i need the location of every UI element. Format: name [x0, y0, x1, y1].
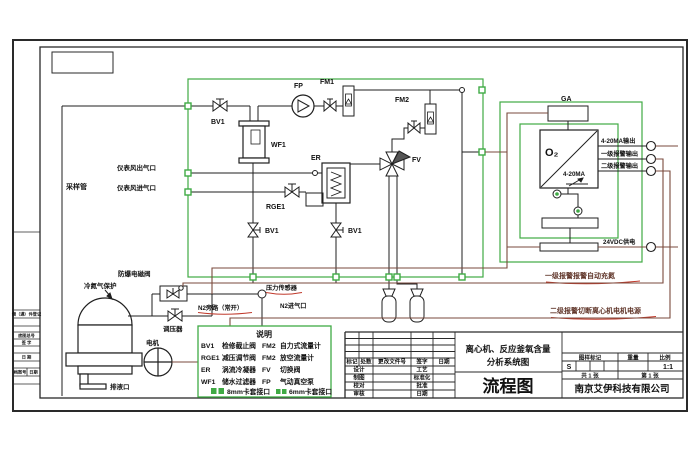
legend-desc-6: 储水过滤器: [221, 377, 256, 386]
row-standard-label: 标准化: [413, 374, 431, 382]
row-check-label: 校对: [353, 382, 365, 390]
rev-count-label: 处数: [359, 358, 372, 366]
regulator-label: 调压器: [163, 324, 183, 333]
solenoid-label: 防爆电磁阀: [118, 269, 151, 278]
legend-code-1: FM2: [262, 343, 276, 350]
centrifuge-flange: [66, 353, 142, 366]
pressure-sensor: [258, 290, 266, 298]
bv1-left-valve: [248, 223, 260, 237]
drawing-sheet: 借（通）件登记 底图总号 签 字 日 期 档案号 日期 采样管 仪表风出气口 仪…: [0, 0, 700, 450]
legend-code-5: FV: [262, 367, 271, 374]
fitting-8mm-label: 8mm卡套接口: [227, 387, 270, 396]
fv-valve: [380, 151, 410, 176]
motor: [144, 348, 172, 376]
legend-desc-1: 自力式流量计: [280, 341, 321, 350]
alarm1-action-label: 一级报警报警自动充氮: [545, 271, 615, 280]
rge1-valve: [285, 184, 323, 206]
rev-sign-label: 签字: [415, 358, 428, 366]
er-condenser: [322, 163, 350, 203]
row-process-label: 工艺: [416, 366, 428, 374]
motor-label: 电机: [146, 338, 160, 347]
rev-mark-label: 标记: [345, 358, 358, 366]
strip-archive-label: 档案号: [13, 369, 27, 376]
sample-pipe-label: 采样管: [65, 182, 87, 191]
legend-desc-5: 切换阀: [280, 365, 301, 374]
sheet-number: 第 1 张: [640, 372, 659, 380]
fm1-meter: [324, 86, 354, 116]
row-audit-label: 审核: [353, 390, 365, 398]
bv1-right-label: BV1: [348, 228, 362, 235]
er-label: ER: [311, 155, 321, 162]
air-out-label: 仪表风出气口: [116, 163, 156, 172]
alarm2-action-label: 二级报警切断离心机电机电源: [550, 306, 641, 315]
strip-sign-label: 签 字: [21, 339, 32, 346]
strip-archive-date-label: 日期: [29, 369, 37, 376]
legend-desc-4: 涡流冷凝器: [222, 365, 256, 374]
bv1-left-label: BV1: [265, 228, 279, 235]
fp-label: FP: [294, 83, 303, 90]
scale-header: 比例: [659, 354, 671, 362]
scale-value: 1:1: [663, 364, 673, 371]
ga-label: GA: [561, 96, 572, 103]
row-draw-label: 制图: [353, 374, 365, 382]
legend-code-0: BV1: [201, 343, 214, 350]
company-name: 南京艾伊科技有限公司: [574, 383, 669, 395]
legend-code-3: FM2: [262, 355, 276, 362]
weight-header: 重量: [627, 354, 639, 362]
sensor-dot-1: [555, 192, 559, 196]
fm2-label: FM2: [395, 97, 409, 104]
legend-code-7: FP: [262, 379, 271, 386]
sensor-cell: [540, 188, 598, 251]
drawing-name: 流程图: [483, 376, 534, 396]
legend-code-4: ER: [201, 367, 211, 374]
fm1-label: FM1: [320, 79, 334, 86]
fv-label: FV: [412, 157, 421, 164]
alarm2-out-label: 二级报警输出: [601, 162, 638, 170]
legend-desc-7: 气动真空泵: [279, 377, 314, 386]
product-title-line2: 分析系统图: [487, 357, 530, 367]
air-in-label: 仪表风进气口: [116, 183, 156, 192]
alarm1-out-label: 一级报警输出: [601, 150, 638, 158]
legend-title: 说明: [256, 329, 272, 339]
wf1-label: WF1: [271, 142, 286, 149]
mark-value: S: [567, 364, 572, 371]
output-terminals: [647, 142, 656, 252]
out-420ma-label: 4-20MA输出: [601, 137, 635, 145]
centrifuge: [66, 298, 142, 389]
rge1-label: RGE1: [266, 204, 285, 211]
centrifuge-dome: [78, 298, 132, 325]
sample-cylinders: [382, 289, 424, 322]
strip-date-label: 日 期: [22, 354, 32, 361]
legend-desc-3: 放空流量计: [279, 353, 314, 362]
pipe-junction: [460, 88, 465, 93]
n2-protect-label: 冷氮气保护: [84, 281, 117, 290]
row-date-label: 日期: [416, 390, 428, 398]
pressure-sensor-label: 压力传感器: [266, 284, 298, 292]
air-junction: [313, 171, 318, 176]
row-approve-label: 批准: [416, 382, 428, 390]
top-left-box: [52, 52, 113, 73]
row-design-label: 设计: [353, 366, 365, 374]
bv1-right-valve: [331, 223, 343, 237]
legend-desc-2: 减压调节阀: [222, 353, 256, 362]
left-strip: [13, 232, 40, 384]
regulator-valve: [168, 309, 182, 321]
strip-borrow-label: 借（通）件登记: [11, 311, 42, 318]
power-label: 24VDC供电: [603, 238, 636, 246]
wf1-filter: [239, 121, 269, 163]
fm2-meter: [408, 104, 436, 134]
rev-file-label: 更改文件号: [378, 358, 406, 366]
n2-bypass-label: N2旁路（常开）: [198, 304, 243, 312]
legend-desc-0: 检修截止阀: [222, 341, 256, 350]
fp-pump: [292, 95, 314, 117]
legend-box: 说明 BV1 检修截止阀 FM2 自力式流量计 RGE1 减压调节阀 FM2 放…: [198, 326, 332, 397]
left-strip-labels: 借（通）件登记 底图总号 签 字 日 期 档案号 日期: [11, 311, 42, 376]
bv1-top-label: BV1: [211, 119, 225, 126]
product-title-line1: 离心机、反应釜氧含量: [465, 344, 551, 354]
sensor-dot-2: [576, 209, 580, 213]
fitting-6mm-label: 6mm卡套接口: [289, 387, 332, 396]
strip-baseno-label: 底图总号: [18, 332, 35, 339]
solenoid-valve: [160, 286, 187, 301]
o2-signal-label: 4-20MA: [563, 171, 586, 178]
legend-code-6: WF1: [201, 379, 216, 386]
bv1-top-valve: [213, 99, 227, 111]
o2-label: O₂: [545, 147, 559, 159]
n2-inlet-label: N2进气口: [280, 302, 306, 310]
mark-header: 图样标记: [579, 354, 602, 362]
drain-label: 排液口: [110, 382, 130, 391]
rev-date-label: 日期: [438, 358, 450, 366]
ga-box: [548, 106, 588, 130]
o2-analyzer: [540, 130, 598, 188]
legend-code-2: RGE1: [201, 355, 220, 362]
sheet-total: 共 1 张: [581, 372, 599, 380]
